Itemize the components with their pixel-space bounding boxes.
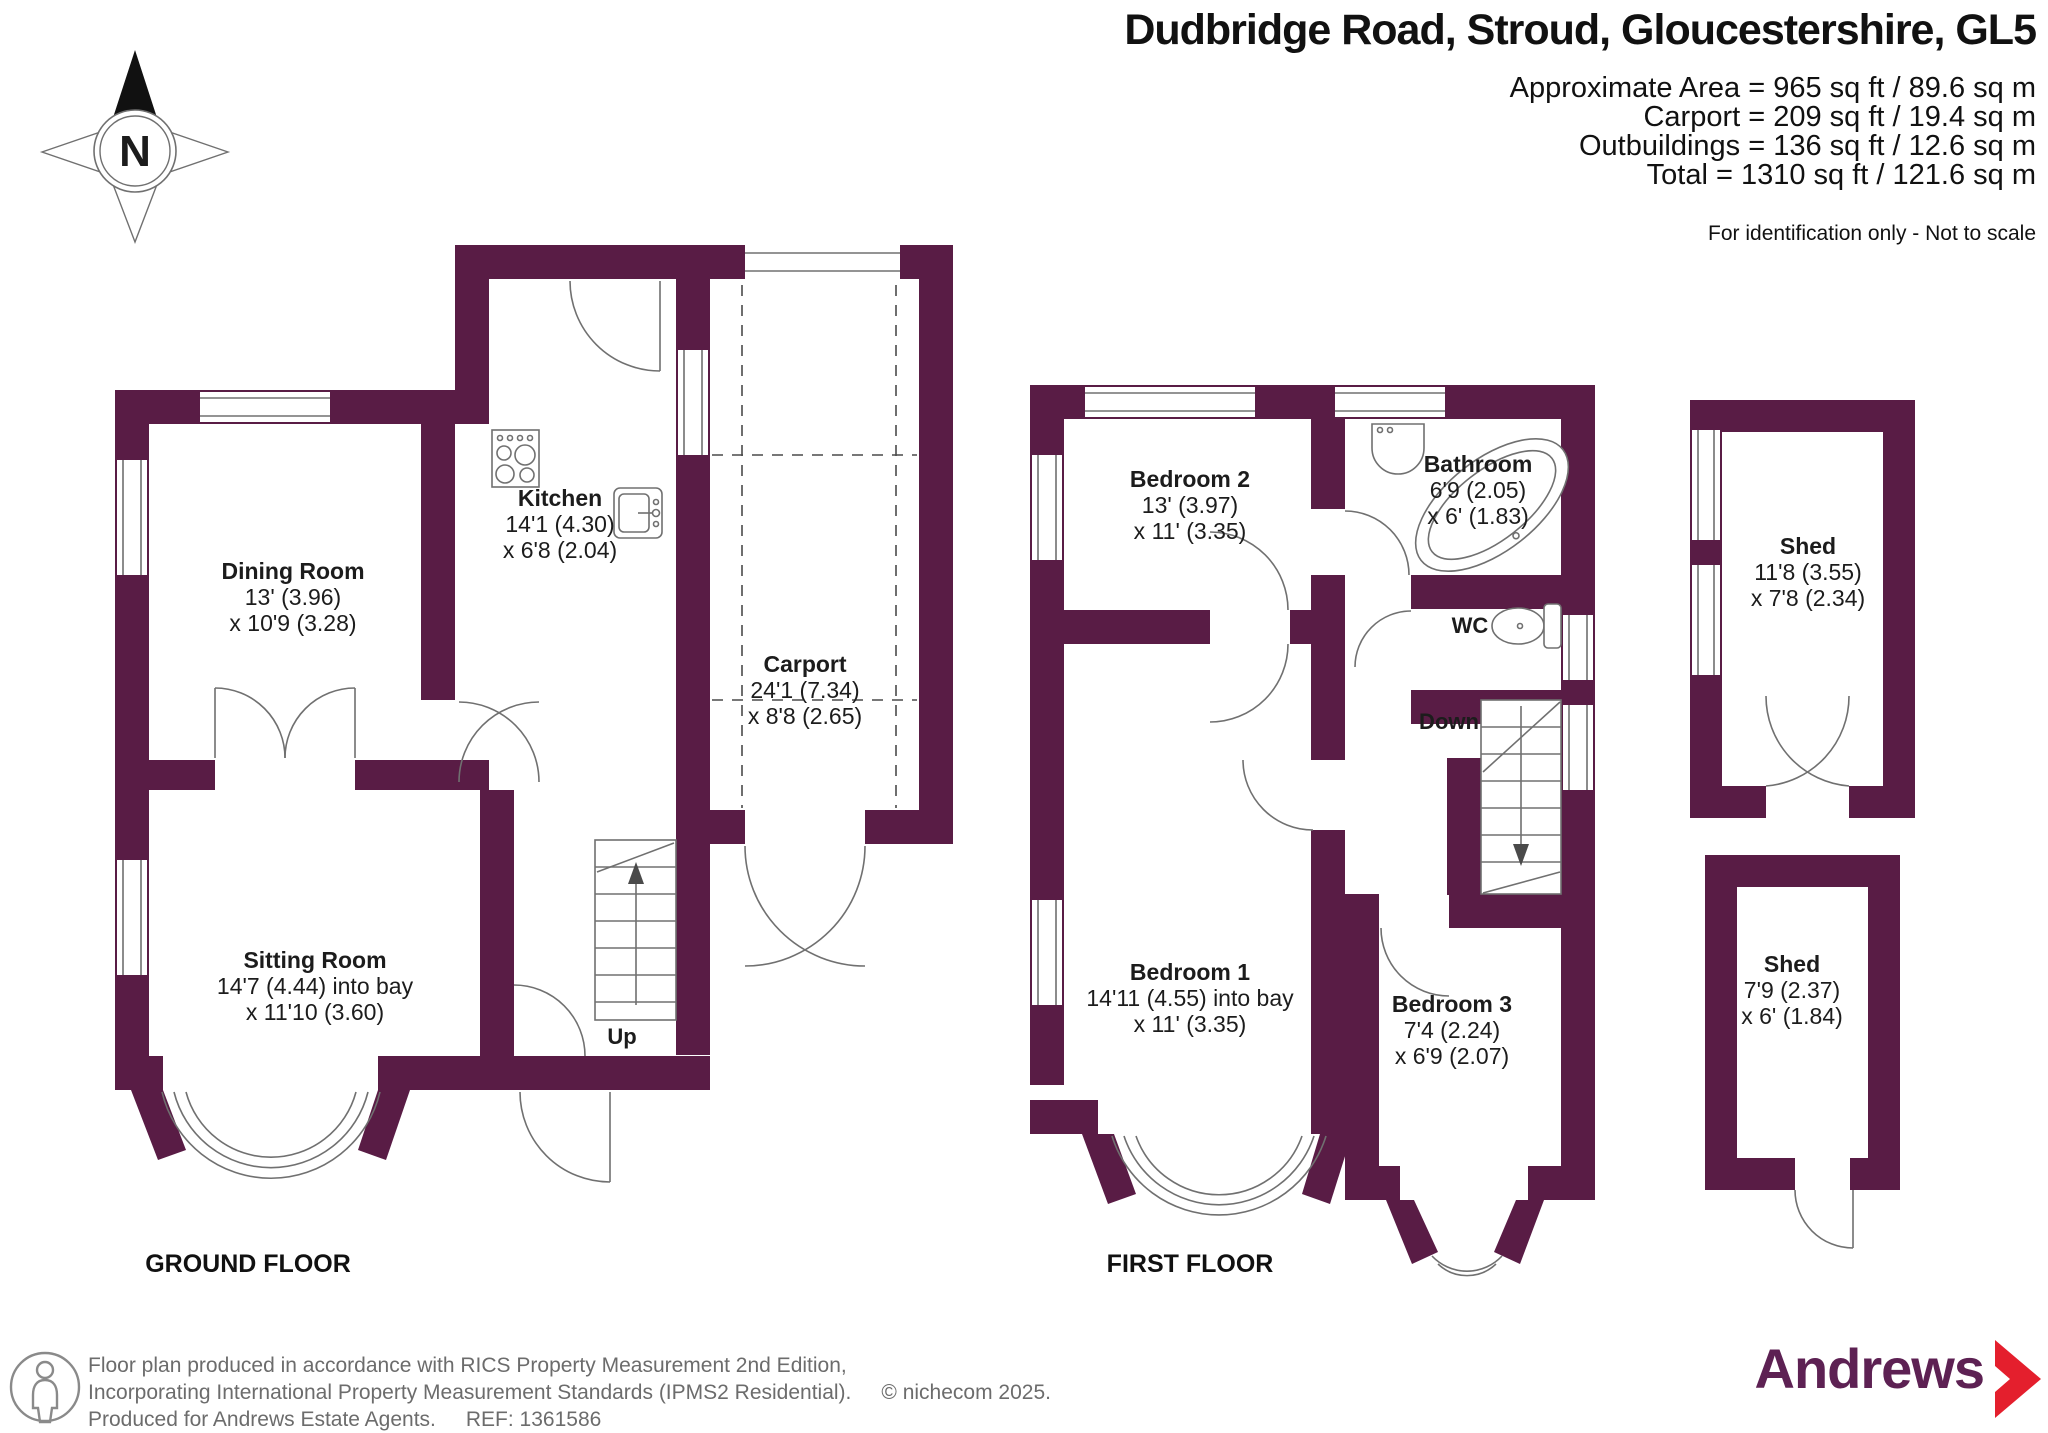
- basin-icon: [1372, 424, 1424, 474]
- room-label-shed2: Shed 7'9 (2.37) x 6' (1.84): [1741, 951, 1843, 1029]
- ground-floor-title: GROUND FLOOR: [145, 1250, 351, 1279]
- stairs-up-label: Up: [607, 1024, 636, 1050]
- carport-dashes: [712, 285, 917, 808]
- room-label-bedroom2: Bedroom 2 13' (3.97) x 11' (3.35): [1130, 466, 1250, 544]
- page-title: Dudbridge Road, Stroud, Gloucestershire,…: [1124, 6, 2036, 55]
- area-approximate: Approximate Area = 965 sq ft / 89.6 sq m: [1510, 74, 2036, 103]
- person-icon: [11, 1353, 79, 1422]
- area-total: Total = 1310 sq ft / 121.6 sq m: [1510, 161, 2036, 190]
- scale-disclaimer: For identification only - Not to scale: [1708, 222, 2036, 246]
- room-label-shed1: Shed 11'8 (3.55) x 7'8 (2.34): [1751, 533, 1865, 611]
- stairs-down-label: Down: [1419, 709, 1479, 735]
- stove-icon: [492, 430, 539, 487]
- first-floor-title: FIRST FLOOR: [1107, 1250, 1274, 1279]
- andrews-chevron-icon: [1995, 1340, 2041, 1418]
- first-floor-stairs: [1481, 700, 1561, 894]
- copyright-text: © nichecom 2025.: [881, 1381, 1051, 1404]
- room-label-dining: Dining Room 13' (3.96) x 10'9 (3.28): [221, 558, 364, 636]
- footer-line3: Produced for Andrews Estate Agents.REF: …: [88, 1406, 1051, 1433]
- footer-line1: Floor plan produced in accordance with R…: [88, 1352, 1051, 1379]
- area-carport: Carport = 209 sq ft / 19.4 sq m: [1510, 103, 2036, 132]
- area-summary: Approximate Area = 965 sq ft / 89.6 sq m…: [1510, 74, 2036, 190]
- footer-line2: Incorporating International Property Mea…: [88, 1379, 1051, 1406]
- area-outbuildings: Outbuildings = 136 sq ft / 12.6 sq m: [1510, 132, 2036, 161]
- floorplan-page: Dudbridge Road, Stroud, Gloucestershire,…: [0, 0, 2048, 1426]
- room-label-bathroom: Bathroom 6'9 (2.05) x 6' (1.83): [1424, 451, 1533, 529]
- sink-icon: [614, 488, 662, 538]
- bay-windows: [162, 1092, 1502, 1276]
- room-label-carport: Carport 24'1 (7.34) x 8'8 (2.65): [748, 651, 862, 729]
- room-label-bedroom3: Bedroom 3 7'4 (2.24) x 6'9 (2.07): [1392, 991, 1512, 1069]
- room-label-sitting: Sitting Room 14'7 (4.44) into bay x 11'1…: [217, 947, 413, 1025]
- floorplan-drawing: [0, 0, 2048, 1426]
- toilet-icon: [1492, 604, 1561, 648]
- shed-walls: [1690, 400, 1915, 1190]
- ground-floor-stairs: [595, 840, 676, 1020]
- reference-number: REF: 1361586: [466, 1408, 601, 1431]
- compass-north-label: N: [119, 127, 151, 177]
- room-label-bedroom1: Bedroom 1 14'11 (4.55) into bay x 11' (3…: [1086, 959, 1293, 1037]
- wc-label: WC: [1452, 613, 1489, 639]
- room-label-kitchen: Kitchen 14'1 (4.30) x 6'8 (2.04): [503, 485, 617, 563]
- footer-disclaimer: Floor plan produced in accordance with R…: [88, 1352, 1051, 1433]
- andrews-logo-text: Andrews: [1755, 1336, 1985, 1401]
